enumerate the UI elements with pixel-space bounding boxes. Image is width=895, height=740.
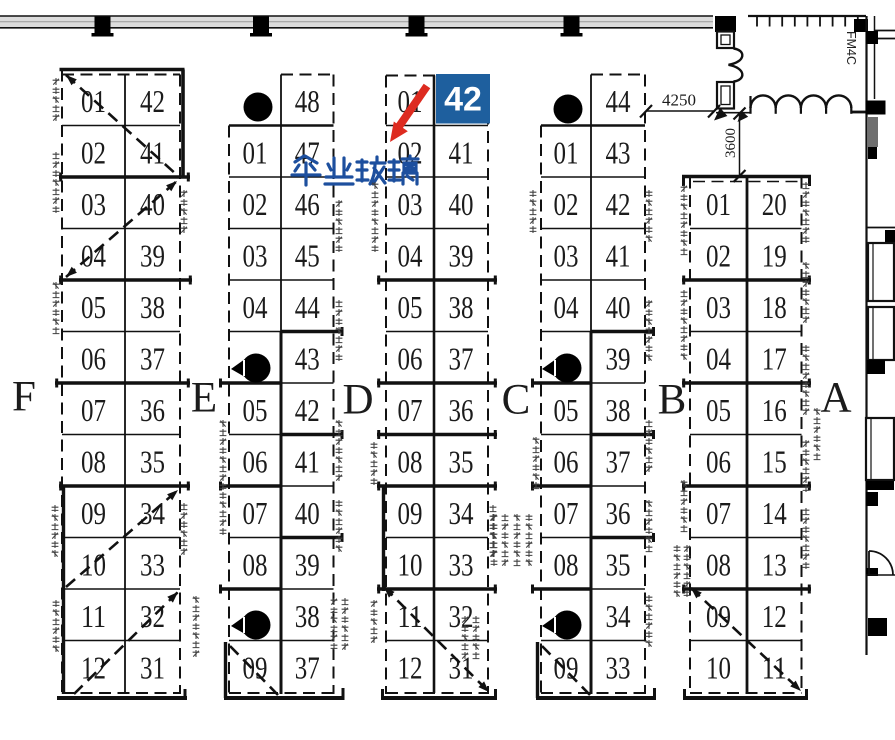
svg-text:04: 04 (554, 289, 579, 325)
svg-text:08: 08 (243, 546, 268, 582)
svg-text:40: 40 (449, 186, 474, 222)
svg-text:08: 08 (81, 443, 106, 479)
svg-text:16: 16 (762, 392, 787, 428)
svg-text:39: 39 (606, 340, 631, 376)
svg-text:05: 05 (554, 392, 579, 428)
svg-text:39: 39 (449, 237, 474, 273)
svg-text:03: 03 (398, 186, 423, 222)
svg-text:05: 05 (243, 392, 268, 428)
svg-text:03: 03 (706, 289, 731, 325)
svg-text:34: 34 (449, 495, 474, 531)
svg-text:04: 04 (243, 289, 268, 325)
svg-text:38: 38 (295, 598, 320, 634)
svg-text:13: 13 (762, 546, 787, 582)
svg-text:02: 02 (554, 186, 579, 222)
svg-text:33: 33 (606, 649, 631, 685)
svg-text:01: 01 (554, 134, 579, 170)
svg-text:02: 02 (81, 134, 106, 170)
svg-text:07: 07 (398, 392, 423, 428)
svg-text:B: B (658, 377, 687, 424)
svg-text:06: 06 (243, 443, 268, 479)
svg-text:3600: 3600 (723, 128, 739, 158)
svg-text:10: 10 (706, 649, 731, 685)
svg-text:37: 37 (606, 443, 631, 479)
svg-text:02: 02 (243, 186, 268, 222)
svg-text:35: 35 (449, 443, 474, 479)
svg-text:07: 07 (706, 495, 731, 531)
svg-text:14: 14 (762, 495, 787, 531)
svg-text:36: 36 (449, 392, 474, 428)
svg-text:39: 39 (295, 546, 320, 582)
svg-text:03: 03 (243, 237, 268, 273)
svg-text:15: 15 (762, 443, 787, 479)
svg-text:40: 40 (606, 289, 631, 325)
svg-text:07: 07 (554, 495, 579, 531)
svg-text:07: 07 (243, 495, 268, 531)
svg-text:05: 05 (398, 289, 423, 325)
svg-text:37: 37 (140, 340, 165, 376)
svg-text:17: 17 (762, 340, 787, 376)
svg-text:12: 12 (762, 598, 787, 634)
svg-text:02: 02 (706, 237, 731, 273)
svg-text:43: 43 (295, 340, 320, 376)
svg-text:06: 06 (81, 340, 106, 376)
svg-text:12: 12 (398, 649, 423, 685)
svg-text:C: C (502, 377, 531, 424)
svg-text:37: 37 (295, 649, 320, 685)
svg-text:34: 34 (606, 598, 631, 634)
svg-text:36: 36 (606, 495, 631, 531)
svg-text:05: 05 (706, 392, 731, 428)
svg-text:01: 01 (81, 83, 106, 119)
svg-text:19: 19 (762, 237, 787, 273)
svg-text:03: 03 (81, 186, 106, 222)
svg-text:38: 38 (449, 289, 474, 325)
svg-text:08: 08 (398, 443, 423, 479)
svg-text:04: 04 (81, 237, 106, 273)
svg-text:41: 41 (295, 443, 320, 479)
svg-text:20: 20 (762, 186, 787, 222)
svg-text:04: 04 (706, 340, 731, 376)
svg-text:10: 10 (81, 546, 106, 582)
svg-text:18: 18 (762, 289, 787, 325)
svg-text:40: 40 (295, 495, 320, 531)
svg-text:31: 31 (140, 649, 165, 685)
svg-text:37: 37 (449, 340, 474, 376)
svg-text:09: 09 (706, 598, 731, 634)
svg-text:44: 44 (606, 83, 631, 119)
svg-text:46: 46 (295, 186, 320, 222)
svg-text:01: 01 (706, 186, 731, 222)
svg-text:45: 45 (295, 237, 320, 273)
svg-text:09: 09 (81, 495, 106, 531)
svg-text:42: 42 (140, 83, 165, 119)
svg-text:43: 43 (606, 134, 631, 170)
svg-text:D: D (342, 377, 373, 424)
svg-text:E: E (191, 375, 217, 422)
svg-text:32: 32 (140, 598, 165, 634)
svg-text:42: 42 (606, 186, 631, 222)
svg-text:35: 35 (140, 443, 165, 479)
svg-text:06: 06 (554, 443, 579, 479)
svg-text:42: 42 (444, 81, 482, 119)
svg-text:08: 08 (554, 546, 579, 582)
svg-text:06: 06 (706, 443, 731, 479)
svg-text:39: 39 (140, 237, 165, 273)
svg-text:40: 40 (140, 186, 165, 222)
svg-text:38: 38 (606, 392, 631, 428)
svg-text:33: 33 (140, 546, 165, 582)
svg-text:10: 10 (398, 546, 423, 582)
svg-text:41: 41 (606, 237, 631, 273)
svg-text:48: 48 (295, 83, 320, 119)
svg-text:04: 04 (398, 237, 423, 273)
svg-text:FM4C: FM4C (844, 31, 858, 65)
svg-text:05: 05 (81, 289, 106, 325)
svg-text:07: 07 (81, 392, 106, 428)
svg-text:35: 35 (606, 546, 631, 582)
svg-text:03: 03 (554, 237, 579, 273)
svg-text:33: 33 (449, 546, 474, 582)
svg-text:36: 36 (140, 392, 165, 428)
svg-text:A: A (820, 375, 851, 422)
svg-text:44: 44 (295, 289, 320, 325)
svg-text:4250: 4250 (662, 91, 696, 110)
svg-text:01: 01 (243, 134, 268, 170)
svg-text:32: 32 (449, 598, 474, 634)
svg-text:41: 41 (449, 134, 474, 170)
svg-text:42: 42 (295, 392, 320, 428)
svg-text:34: 34 (140, 495, 165, 531)
svg-text:09: 09 (398, 495, 423, 531)
svg-text:06: 06 (398, 340, 423, 376)
svg-text:F: F (12, 374, 36, 421)
svg-text:38: 38 (140, 289, 165, 325)
svg-text:11: 11 (81, 598, 106, 634)
svg-text:08: 08 (706, 546, 731, 582)
